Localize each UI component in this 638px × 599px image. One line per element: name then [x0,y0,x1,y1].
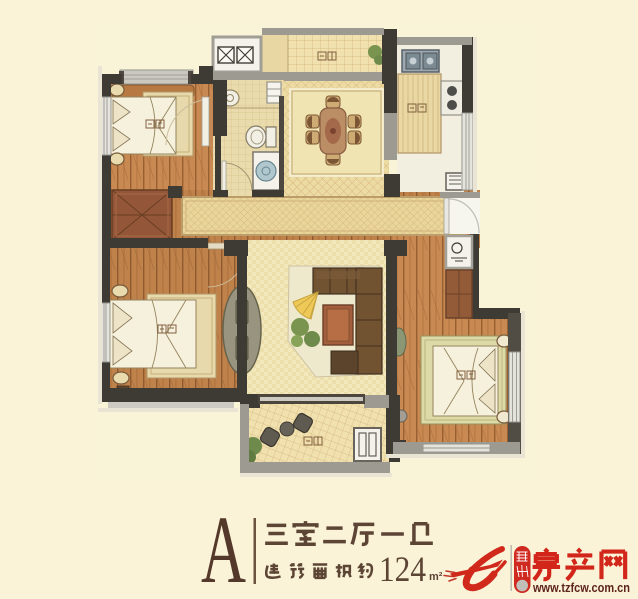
svg-text:124: 124 [379,549,426,589]
svg-text:www.tzfcw.com.cn: www.tzfcw.com.cn [532,581,630,595]
svg-text:A: A [201,496,246,599]
svg-text:m²: m² [429,571,443,583]
